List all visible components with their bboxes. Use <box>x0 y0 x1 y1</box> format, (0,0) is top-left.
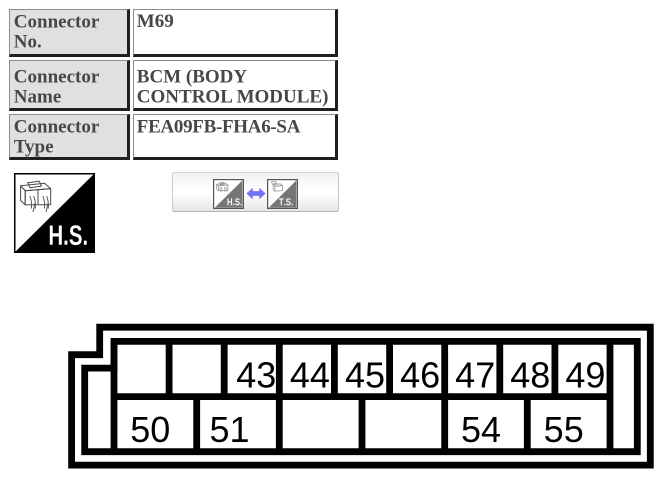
svg-text:51: 51 <box>209 409 249 450</box>
svg-text:54: 54 <box>461 409 501 450</box>
svg-text:50: 50 <box>130 409 170 450</box>
svg-text:48: 48 <box>510 355 550 396</box>
svg-text:46: 46 <box>400 355 440 396</box>
svg-text:47: 47 <box>455 355 495 396</box>
svg-text:44: 44 <box>290 355 330 396</box>
svg-text:49: 49 <box>565 355 605 396</box>
svg-text:43: 43 <box>236 355 276 396</box>
svg-text:55: 55 <box>544 409 584 450</box>
svg-text:45: 45 <box>345 355 385 396</box>
